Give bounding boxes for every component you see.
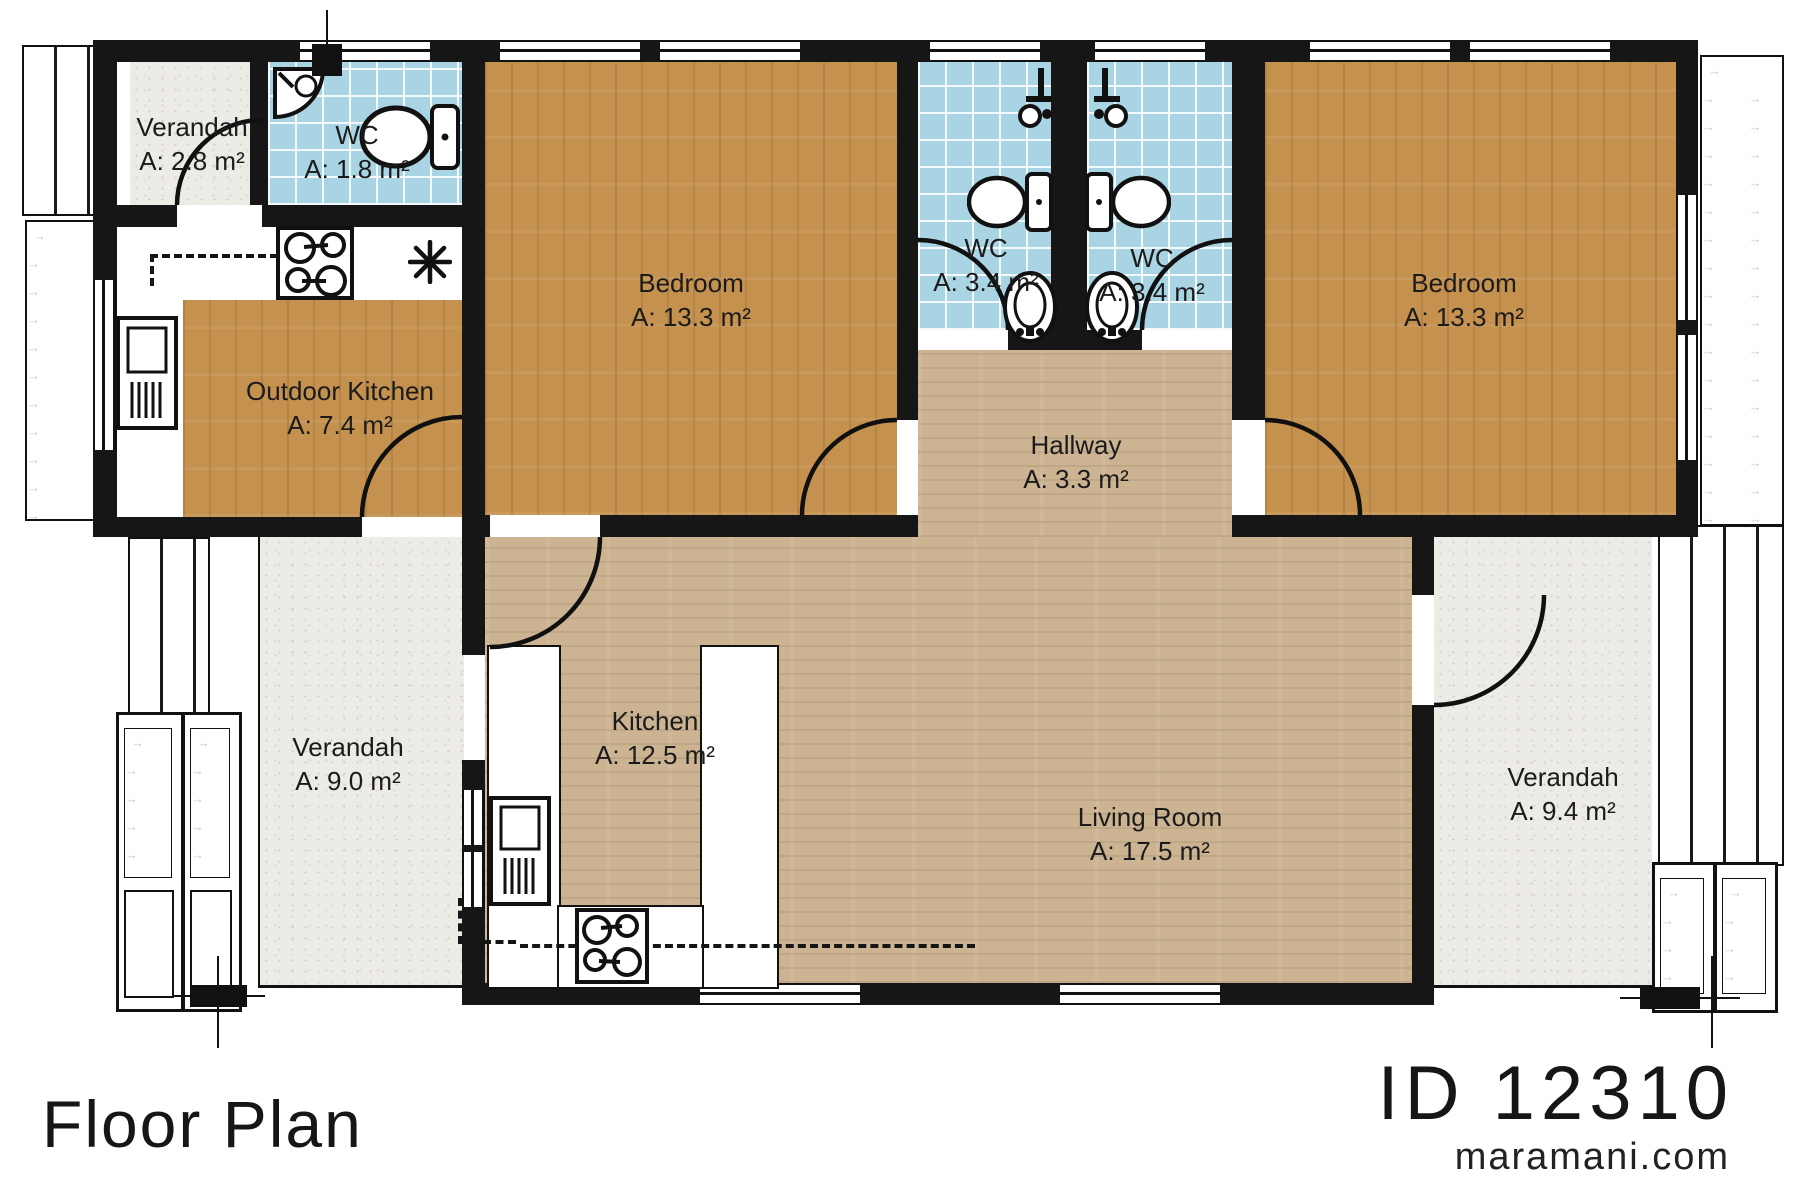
website-url: maramani.com bbox=[1455, 1136, 1730, 1179]
toilet-icon bbox=[967, 170, 1059, 234]
fridge-icon bbox=[489, 796, 551, 906]
room-name: WC bbox=[933, 231, 1038, 265]
room-name: Hallway bbox=[1023, 428, 1128, 462]
room-area: A: 3.3 m² bbox=[1023, 462, 1128, 496]
room-name: Verandah bbox=[136, 110, 247, 144]
page-title: Floor Plan bbox=[42, 1086, 363, 1162]
room-area: A: 9.0 m² bbox=[292, 764, 403, 798]
room-label-kitchen: KitchenA: 12.5 m² bbox=[595, 704, 715, 772]
room-area: A: 2.8 m² bbox=[136, 144, 247, 178]
room-name: Bedroom bbox=[1404, 266, 1524, 300]
room-area: A: 17.5 m² bbox=[1078, 834, 1223, 868]
room-area: A: 9.4 m² bbox=[1507, 794, 1618, 828]
room-label-hallway: HallwayA: 3.3 m² bbox=[1023, 428, 1128, 496]
room-area: A: 7.4 m² bbox=[246, 408, 434, 442]
room-area: A: 13.3 m² bbox=[1404, 300, 1524, 334]
room-label-outdoor-kitchen: Outdoor KitchenA: 7.4 m² bbox=[246, 374, 434, 442]
room-name: Kitchen bbox=[595, 704, 715, 738]
room-name: Verandah bbox=[1507, 760, 1618, 794]
floor-plan-canvas: → → → → → → → → → → → → → → → → → → → → … bbox=[0, 0, 1800, 1200]
shower-icon bbox=[1014, 68, 1054, 134]
room-name: WC bbox=[304, 118, 409, 152]
room-area: A: 12.5 m² bbox=[595, 738, 715, 772]
stove-icon bbox=[276, 226, 354, 300]
room-label-bedroom-right: BedroomA: 13.3 m² bbox=[1404, 266, 1524, 334]
shower-icon bbox=[1092, 68, 1132, 134]
dimension-tick bbox=[172, 995, 265, 997]
room-label-verandah-top-left: VerandahA: 2.8 m² bbox=[136, 110, 247, 178]
stove-icon bbox=[575, 908, 649, 984]
room-label-wc-center-left: WCA: 3.4 m² bbox=[933, 231, 1038, 299]
dimension-tick bbox=[1620, 997, 1740, 999]
dimension-tick bbox=[217, 956, 219, 1048]
room-area: A: 1.8 m² bbox=[304, 152, 409, 186]
room-area: A: 3.4 m² bbox=[1099, 275, 1204, 309]
room-label-wc-center-right: WCA: 3.4 m² bbox=[1099, 241, 1204, 309]
kitchen-sink-asterisk-icon bbox=[408, 240, 452, 284]
door-arc-layer bbox=[0, 0, 1800, 1200]
room-name: WC bbox=[1099, 241, 1204, 275]
room-label-verandah-bottom-right: VerandahA: 9.4 m² bbox=[1507, 760, 1618, 828]
room-name: Outdoor Kitchen bbox=[246, 374, 434, 408]
room-area: A: 3.4 m² bbox=[933, 265, 1038, 299]
room-name: Bedroom bbox=[631, 266, 751, 300]
dimension-tick bbox=[312, 44, 342, 76]
room-area: A: 13.3 m² bbox=[631, 300, 751, 334]
fridge-icon bbox=[116, 316, 178, 430]
dimension-tick bbox=[1711, 956, 1713, 1048]
room-label-bedroom-left: BedroomA: 13.3 m² bbox=[631, 266, 751, 334]
room-name: Living Room bbox=[1078, 800, 1223, 834]
plan-id: ID 12310 bbox=[1378, 1050, 1734, 1137]
room-label-living-room: Living RoomA: 17.5 m² bbox=[1078, 800, 1223, 868]
room-name: Verandah bbox=[292, 730, 403, 764]
room-label-verandah-bottom-left: VerandahA: 9.0 m² bbox=[292, 730, 403, 798]
toilet-icon bbox=[1079, 170, 1171, 234]
room-label-wc-top-left: WCA: 1.8 m² bbox=[304, 118, 409, 186]
